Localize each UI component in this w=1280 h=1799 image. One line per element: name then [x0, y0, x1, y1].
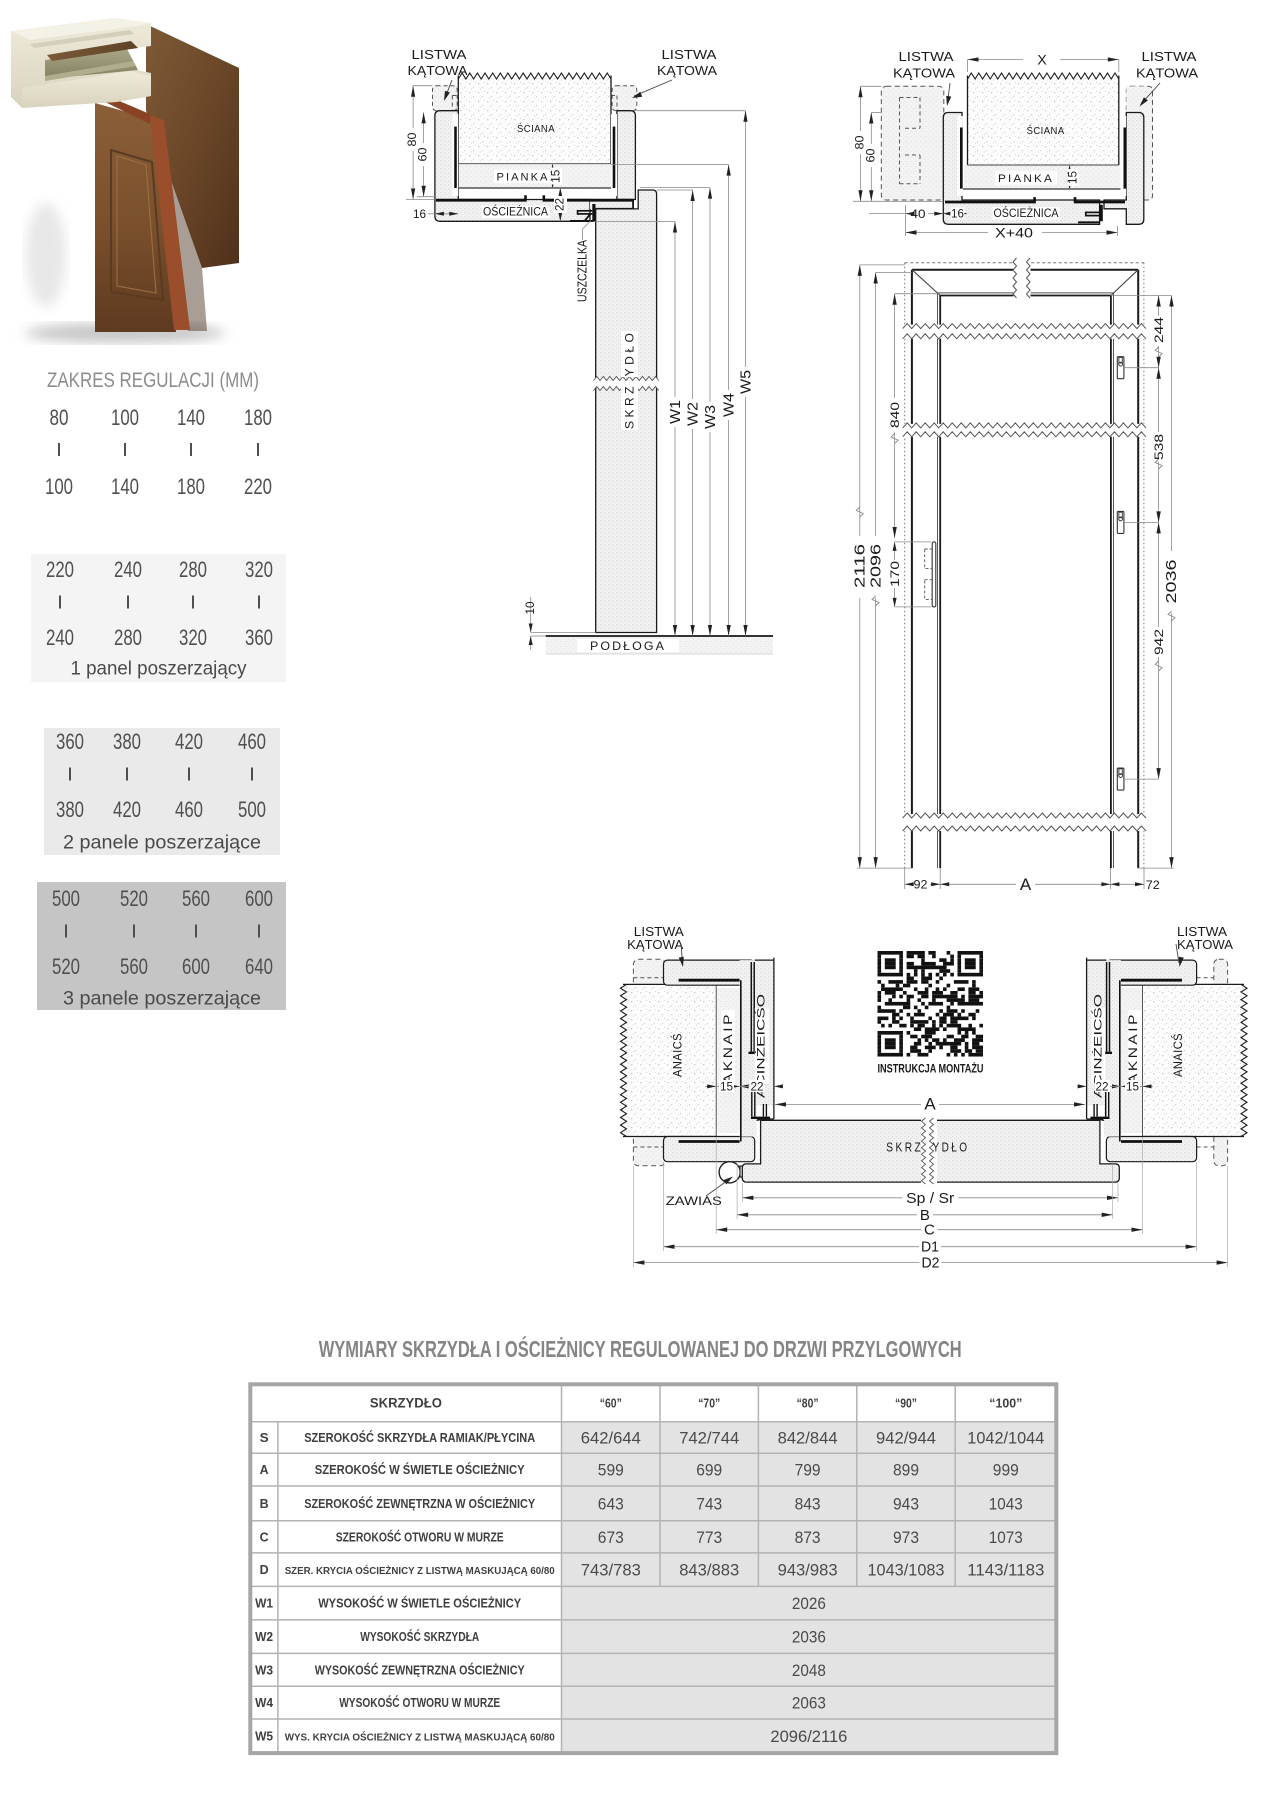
svg-text:USZCZELKA: USZCZELKA [576, 239, 590, 302]
svg-text:ŚCIANA: ŚCIANA [1027, 124, 1065, 137]
svg-text:360: 360 [56, 729, 84, 754]
svg-text:W5: W5 [255, 1730, 273, 1744]
svg-text:PIANKA: PIANKA [497, 171, 550, 183]
svg-text:WYSOKOŚĆ ZEWNĘTRZNA OŚCIEŻNICY: WYSOKOŚĆ ZEWNĘTRZNA OŚCIEŻNICY [315, 1662, 526, 1677]
svg-text:699: 699 [696, 1461, 722, 1480]
svg-text:743: 743 [696, 1494, 722, 1513]
svg-text:170: 170 [888, 561, 902, 587]
svg-text:320: 320 [179, 625, 207, 650]
svg-text:80: 80 [853, 135, 867, 149]
svg-text:PODŁOGA: PODŁOGA [590, 639, 666, 653]
svg-text:140: 140 [177, 405, 205, 430]
svg-text:SZEROKOŚĆ SKRZYDŁA RAMIAK/PŁYC: SZEROKOŚĆ SKRZYDŁA RAMIAK/PŁYCINA [304, 1430, 535, 1445]
svg-text:843: 843 [795, 1494, 821, 1513]
svg-text:WYS. KRYCIA OŚCIEŻNICY Z LISTW: WYS. KRYCIA OŚCIEŻNICY Z LISTWĄ MASKUJĄC… [285, 1731, 555, 1744]
svg-text:“70”: “70” [698, 1396, 720, 1410]
svg-text:16: 16 [951, 207, 964, 221]
svg-text:943: 943 [893, 1494, 919, 1513]
svg-text:22: 22 [1096, 1081, 1109, 1093]
svg-text:AKNAIP: AKNAIP [721, 1012, 735, 1084]
svg-text:KĄTOWA: KĄTOWA [893, 66, 955, 81]
svg-text:843/883: 843/883 [679, 1561, 739, 1580]
svg-text:ANAICŚ: ANAICŚ [1172, 1033, 1185, 1077]
svg-text:SKRZ: SKRZ [623, 383, 637, 429]
svg-text:973: 973 [893, 1528, 919, 1547]
svg-text:140: 140 [111, 474, 139, 499]
svg-text:600: 600 [182, 954, 210, 979]
svg-text:15: 15 [551, 170, 563, 183]
svg-text:40: 40 [911, 207, 926, 221]
svg-text:SKRZ: SKRZ [886, 1141, 923, 1155]
svg-text:80: 80 [50, 405, 69, 430]
svg-text:1042/1044: 1042/1044 [967, 1429, 1044, 1448]
svg-text:X: X [1037, 51, 1047, 67]
svg-text:SKRZYDŁO: SKRZYDŁO [370, 1396, 442, 1411]
svg-text:YDŁO: YDŁO [933, 1141, 970, 1155]
svg-text:380: 380 [113, 729, 141, 754]
svg-text:560: 560 [120, 954, 148, 979]
svg-text:244: 244 [1152, 317, 1166, 343]
svg-text:W1: W1 [255, 1597, 273, 1611]
svg-text:“80”: “80” [797, 1396, 819, 1410]
svg-text:460: 460 [238, 729, 266, 754]
svg-text:WYSOKOŚĆ SKRZYDŁA: WYSOKOŚĆ SKRZYDŁA [360, 1629, 479, 1644]
svg-text:ZAKRES REGULACJI (MM): ZAKRES REGULACJI (MM) [47, 369, 259, 392]
svg-text:280: 280 [114, 625, 142, 650]
svg-text:W2: W2 [685, 402, 702, 426]
svg-text:1043/1083: 1043/1083 [868, 1561, 945, 1580]
svg-text:420: 420 [113, 797, 141, 822]
svg-text:520: 520 [52, 954, 80, 979]
svg-text:500: 500 [238, 797, 266, 822]
svg-text:W5: W5 [738, 370, 755, 394]
svg-text:A: A [1020, 875, 1032, 894]
svg-text:KĄTOWA: KĄTOWA [1177, 937, 1233, 952]
svg-text:643: 643 [598, 1494, 624, 1513]
svg-text:600: 600 [245, 886, 273, 911]
svg-text:3 panele poszerzające: 3 panele poszerzające [63, 988, 261, 1010]
svg-text:320: 320 [245, 557, 273, 582]
svg-text:D2: D2 [922, 1255, 940, 1272]
svg-text:999: 999 [993, 1461, 1019, 1480]
svg-text:KĄTOWA: KĄTOWA [657, 63, 717, 78]
svg-text:X+40: X+40 [995, 224, 1033, 240]
svg-text:420: 420 [175, 729, 203, 754]
svg-text:A: A [924, 1094, 936, 1113]
svg-text:100: 100 [45, 474, 73, 499]
svg-text:W2: W2 [255, 1630, 273, 1644]
svg-text:C: C [260, 1530, 269, 1544]
svg-text:10: 10 [523, 601, 537, 614]
svg-text:SZEROKOŚĆ W ŚWIETLE OŚCIEŻNICY: SZEROKOŚĆ W ŚWIETLE OŚCIEŻNICY [315, 1462, 526, 1477]
svg-text:WYSOKOŚĆ W ŚWIETLE OŚCIEŻNICY: WYSOKOŚĆ W ŚWIETLE OŚCIEŻNICY [318, 1596, 522, 1611]
svg-text:1143/1183: 1143/1183 [967, 1561, 1044, 1580]
svg-text:360: 360 [245, 625, 273, 650]
svg-text:WYMIARY SKRZYDŁA I OŚCIEŻNICY: WYMIARY SKRZYDŁA I OŚCIEŻNICY REGULOWANE… [319, 1335, 962, 1362]
svg-text:180: 180 [244, 405, 272, 430]
svg-text:2026: 2026 [792, 1594, 826, 1613]
svg-text:60: 60 [416, 147, 430, 161]
svg-text:ANAICŚ: ANAICŚ [672, 1033, 685, 1077]
svg-text:ŚCIANA: ŚCIANA [517, 122, 555, 135]
svg-text:AKNAIP: AKNAIP [1126, 1012, 1140, 1084]
svg-text:1 panel poszerzający: 1 panel poszerzający [71, 658, 247, 680]
svg-text:“60”: “60” [600, 1396, 622, 1410]
svg-text:D: D [260, 1563, 269, 1577]
svg-text:599: 599 [598, 1461, 624, 1480]
svg-text:LISTWA: LISTWA [899, 49, 954, 64]
svg-text:OŚCIEŻNICA: OŚCIEŻNICA [994, 207, 1059, 220]
svg-text:PIANKA: PIANKA [998, 173, 1054, 185]
svg-text:OŚCIEŻNICA: OŚCIEŻNICA [483, 206, 548, 219]
svg-text:500: 500 [52, 886, 80, 911]
svg-text:2096: 2096 [868, 544, 885, 588]
svg-text:642/644: 642/644 [581, 1429, 641, 1448]
svg-text:SZEROKOŚĆ ZEWNĘTRZNA W OŚCIEŻN: SZEROKOŚĆ ZEWNĘTRZNA W OŚCIEŻNICY [304, 1496, 536, 1511]
svg-text:72: 72 [1146, 878, 1160, 892]
svg-text:520: 520 [120, 886, 148, 911]
svg-text:Sp / Sr: Sp / Sr [906, 1190, 954, 1207]
svg-text:SZER. KRYCIA OŚCIEŻNICY Z LIST: SZER. KRYCIA OŚCIEŻNICY Z LISTWĄ MASKUJĄ… [285, 1564, 555, 1577]
svg-text:280: 280 [179, 557, 207, 582]
svg-text:INSTRUKCJA MONTAŻU: INSTRUKCJA MONTAŻU [878, 1063, 984, 1076]
svg-text:60: 60 [863, 148, 877, 162]
svg-text:1043: 1043 [989, 1494, 1023, 1513]
svg-text:“90”: “90” [895, 1396, 917, 1410]
svg-text:B: B [260, 1497, 269, 1511]
svg-text:92: 92 [914, 878, 928, 892]
svg-text:W1: W1 [667, 400, 684, 424]
svg-text:2036: 2036 [1163, 560, 1180, 604]
svg-text:15: 15 [1126, 1081, 1139, 1093]
svg-text:15: 15 [720, 1081, 733, 1093]
svg-text:W4: W4 [721, 393, 738, 417]
svg-text:640: 640 [245, 954, 273, 979]
svg-text:943/983: 943/983 [778, 1561, 838, 1580]
svg-text:A: A [260, 1463, 269, 1477]
svg-text:ZAWIAS: ZAWIAS [666, 1194, 722, 1208]
svg-text:2 panele poszerzające: 2 panele poszerzające [63, 832, 261, 854]
svg-text:W4: W4 [255, 1696, 273, 1710]
svg-text:W3: W3 [255, 1663, 273, 1677]
svg-text:220: 220 [46, 557, 74, 582]
svg-text:942: 942 [1152, 629, 1166, 655]
svg-text:1073: 1073 [989, 1528, 1023, 1547]
svg-text:2036: 2036 [792, 1628, 826, 1647]
svg-text:YDŁO: YDŁO [623, 330, 637, 377]
svg-text:742/744: 742/744 [679, 1429, 739, 1448]
svg-text:899: 899 [893, 1461, 919, 1480]
svg-text:S: S [260, 1431, 269, 1445]
svg-text:LISTWA: LISTWA [412, 47, 467, 62]
svg-text:“100”: “100” [989, 1396, 1022, 1410]
svg-text:240: 240 [46, 625, 74, 650]
svg-text:380: 380 [56, 797, 84, 822]
svg-text:KĄTOWA: KĄTOWA [1136, 66, 1198, 81]
svg-text:840: 840 [888, 402, 902, 428]
svg-text:16: 16 [413, 207, 426, 221]
svg-text:D1: D1 [921, 1239, 939, 1256]
svg-text:15: 15 [1068, 171, 1080, 184]
svg-text:538: 538 [1152, 434, 1166, 460]
svg-text:180: 180 [177, 474, 205, 499]
svg-text:220: 220 [244, 474, 272, 499]
svg-text:SZEROKOŚĆ OTWORU W MURZE: SZEROKOŚĆ OTWORU W MURZE [336, 1529, 504, 1544]
svg-text:2063: 2063 [792, 1694, 826, 1713]
svg-text:560: 560 [182, 886, 210, 911]
svg-text:799: 799 [795, 1461, 821, 1480]
svg-text:KĄTOWA: KĄTOWA [408, 63, 468, 78]
svg-text:673: 673 [598, 1528, 624, 1547]
svg-text:942/944: 942/944 [876, 1429, 936, 1448]
svg-text:W3: W3 [702, 405, 719, 429]
svg-text:LISTWA: LISTWA [662, 47, 717, 62]
svg-text:22: 22 [751, 1081, 764, 1093]
svg-text:240: 240 [114, 557, 142, 582]
svg-text:KĄTOWA: KĄTOWA [627, 937, 683, 952]
svg-text:2048: 2048 [792, 1661, 826, 1680]
svg-text:100: 100 [111, 405, 139, 430]
svg-text:2096/2116: 2096/2116 [770, 1727, 847, 1746]
svg-text:842/844: 842/844 [778, 1429, 838, 1448]
svg-text:C: C [924, 1222, 935, 1239]
svg-text:773: 773 [696, 1528, 722, 1547]
svg-text:22: 22 [555, 198, 567, 211]
svg-text:WYSOKOŚĆ OTWORU W MURZE: WYSOKOŚĆ OTWORU W MURZE [339, 1695, 500, 1710]
svg-text:743/783: 743/783 [581, 1561, 641, 1580]
svg-text:460: 460 [175, 797, 203, 822]
svg-text:LISTWA: LISTWA [1142, 49, 1197, 64]
svg-text:2116: 2116 [852, 544, 869, 588]
svg-text:873: 873 [795, 1528, 821, 1547]
